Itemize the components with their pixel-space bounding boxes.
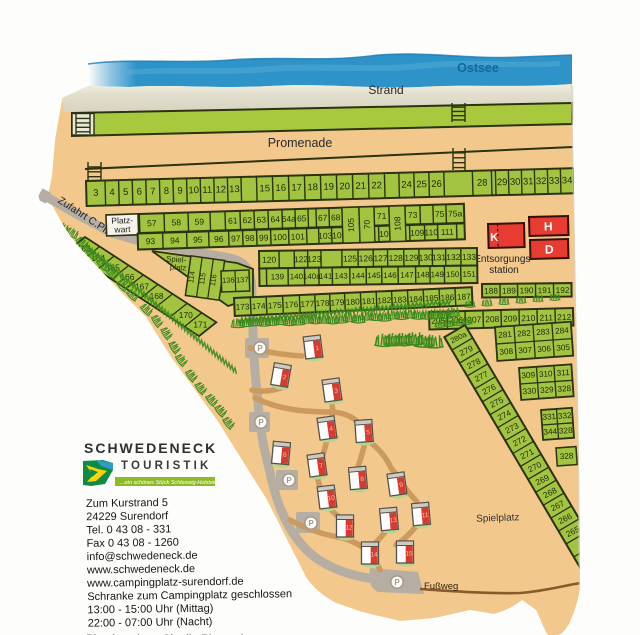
svg-text:328: 328 bbox=[557, 384, 572, 394]
svg-text:140: 140 bbox=[290, 272, 304, 281]
svg-text:57: 57 bbox=[147, 218, 157, 228]
svg-text:www.schwedeneck.de: www.schwedeneck.de bbox=[86, 563, 195, 577]
svg-text:141: 141 bbox=[319, 272, 333, 281]
svg-text:5: 5 bbox=[123, 187, 129, 198]
svg-text:171: 171 bbox=[193, 319, 207, 329]
svg-text:180: 180 bbox=[346, 296, 361, 307]
svg-text:136: 136 bbox=[222, 276, 235, 285]
svg-text:95: 95 bbox=[193, 235, 203, 245]
svg-text:98: 98 bbox=[245, 233, 255, 243]
svg-text:Zum Kurstrand 5: Zum Kurstrand 5 bbox=[86, 497, 168, 510]
svg-text:190: 190 bbox=[520, 285, 534, 295]
svg-text:96: 96 bbox=[214, 234, 224, 244]
svg-text:210: 210 bbox=[521, 313, 536, 323]
svg-text:75: 75 bbox=[435, 209, 445, 219]
svg-text:7: 7 bbox=[150, 186, 156, 197]
svg-text:150: 150 bbox=[446, 270, 460, 279]
svg-text:208: 208 bbox=[485, 314, 500, 324]
svg-text:328: 328 bbox=[559, 426, 574, 436]
svg-text:281: 281 bbox=[498, 330, 513, 340]
svg-text:18: 18 bbox=[307, 182, 318, 193]
svg-text:24229 Surendorf: 24229 Surendorf bbox=[86, 510, 169, 523]
svg-text:211: 211 bbox=[539, 312, 553, 322]
svg-text:31: 31 bbox=[523, 176, 534, 187]
svg-text:6: 6 bbox=[137, 187, 143, 198]
svg-text:209: 209 bbox=[503, 313, 518, 323]
svg-text:13: 13 bbox=[389, 517, 397, 525]
svg-text:191: 191 bbox=[538, 285, 552, 295]
svg-text:58: 58 bbox=[171, 217, 181, 227]
svg-text:H: H bbox=[544, 219, 553, 233]
svg-text:101: 101 bbox=[291, 231, 306, 241]
svg-text:64: 64 bbox=[270, 214, 280, 224]
svg-text:www.campingplatz-surendorf.de: www.campingplatz-surendorf.de bbox=[86, 576, 244, 590]
svg-text:68: 68 bbox=[331, 212, 341, 222]
svg-text:174: 174 bbox=[252, 301, 267, 312]
svg-text:188: 188 bbox=[484, 286, 498, 296]
svg-text:126: 126 bbox=[359, 253, 374, 263]
svg-text:P: P bbox=[308, 519, 314, 528]
svg-text:platz: platz bbox=[170, 262, 187, 272]
svg-text:11: 11 bbox=[421, 512, 429, 520]
svg-text:108: 108 bbox=[392, 216, 402, 231]
svg-text:192: 192 bbox=[556, 285, 570, 295]
svg-text:73: 73 bbox=[408, 210, 418, 220]
svg-text:176: 176 bbox=[284, 299, 299, 310]
svg-text:114: 114 bbox=[186, 271, 197, 284]
svg-text:17: 17 bbox=[291, 182, 302, 193]
svg-text:94: 94 bbox=[170, 235, 180, 245]
svg-text:10: 10 bbox=[327, 495, 335, 503]
svg-text:K: K bbox=[490, 232, 499, 244]
svg-text:15: 15 bbox=[259, 183, 270, 194]
svg-text:311: 311 bbox=[556, 368, 570, 378]
svg-text:173: 173 bbox=[235, 301, 250, 312]
svg-text:Entsorgungs-: Entsorgungs- bbox=[474, 254, 533, 265]
svg-text:28: 28 bbox=[477, 177, 488, 188]
svg-text:308: 308 bbox=[499, 347, 514, 357]
svg-text:144: 144 bbox=[351, 271, 365, 280]
svg-text:99: 99 bbox=[259, 232, 269, 242]
svg-text:...ein schönes Stück Schleswig: ...ein schönes Stück Schleswig-Holstein bbox=[120, 480, 217, 486]
svg-text:Fax 0 43 08 - 1260: Fax 0 43 08 - 1260 bbox=[86, 537, 179, 550]
svg-text:14: 14 bbox=[370, 552, 378, 559]
svg-text:283: 283 bbox=[536, 327, 551, 337]
svg-text:306: 306 bbox=[537, 344, 552, 354]
svg-text:station: station bbox=[489, 265, 518, 276]
svg-text:328: 328 bbox=[559, 451, 574, 461]
svg-text:75a: 75a bbox=[448, 208, 463, 218]
svg-text:13: 13 bbox=[229, 184, 240, 195]
svg-text:16: 16 bbox=[275, 183, 286, 194]
svg-text:21: 21 bbox=[355, 181, 366, 192]
svg-text:212: 212 bbox=[557, 312, 572, 322]
svg-text:103: 103 bbox=[318, 230, 333, 240]
svg-text:32: 32 bbox=[536, 176, 547, 187]
svg-text:65: 65 bbox=[297, 213, 307, 223]
svg-text:8: 8 bbox=[164, 186, 170, 197]
svg-text:3: 3 bbox=[93, 188, 99, 199]
svg-text:100: 100 bbox=[273, 232, 288, 242]
svg-text:132: 132 bbox=[446, 252, 461, 262]
svg-text:25: 25 bbox=[416, 179, 427, 190]
svg-text:149: 149 bbox=[431, 270, 445, 279]
svg-text:305: 305 bbox=[556, 343, 571, 353]
svg-text:125: 125 bbox=[343, 253, 358, 263]
svg-text:175: 175 bbox=[268, 300, 283, 311]
svg-text:116: 116 bbox=[208, 274, 219, 287]
svg-text:24: 24 bbox=[401, 179, 412, 190]
svg-text:115: 115 bbox=[197, 272, 208, 285]
svg-text:10: 10 bbox=[188, 185, 199, 196]
svg-text:129: 129 bbox=[404, 253, 419, 263]
svg-text:329: 329 bbox=[540, 385, 555, 395]
svg-text:62: 62 bbox=[242, 215, 252, 225]
svg-text:179: 179 bbox=[330, 297, 345, 308]
svg-text:123: 123 bbox=[307, 254, 322, 264]
svg-text:120: 120 bbox=[262, 255, 277, 265]
svg-text:97: 97 bbox=[231, 233, 241, 243]
svg-text:282: 282 bbox=[517, 328, 532, 338]
svg-text:info@schwedeneck.de: info@schwedeneck.de bbox=[87, 550, 198, 564]
svg-text:59: 59 bbox=[194, 216, 204, 226]
svg-text:307: 307 bbox=[518, 345, 533, 355]
svg-text:139: 139 bbox=[271, 272, 285, 281]
svg-text:67: 67 bbox=[318, 213, 328, 223]
svg-text:131: 131 bbox=[432, 252, 447, 262]
svg-text:D: D bbox=[545, 242, 554, 256]
svg-text:Tel. 0 43 08 - 331: Tel. 0 43 08 - 331 bbox=[86, 523, 171, 536]
svg-text:Spielplatz: Spielplatz bbox=[476, 512, 520, 525]
svg-text:63: 63 bbox=[256, 215, 266, 225]
svg-text:11: 11 bbox=[202, 185, 212, 196]
svg-text:143: 143 bbox=[334, 271, 348, 280]
svg-text:71: 71 bbox=[377, 211, 387, 221]
svg-text:332: 332 bbox=[558, 411, 573, 421]
svg-text:146: 146 bbox=[383, 271, 397, 280]
svg-text:Ostsee: Ostsee bbox=[457, 61, 499, 75]
svg-text:93: 93 bbox=[145, 236, 155, 246]
svg-text:309: 309 bbox=[521, 370, 536, 380]
svg-text:Strand: Strand bbox=[368, 83, 403, 97]
svg-text:182: 182 bbox=[377, 295, 392, 306]
svg-text:127: 127 bbox=[373, 253, 388, 263]
svg-text:TOURISTIK: TOURISTIK bbox=[121, 460, 212, 472]
svg-text:109: 109 bbox=[410, 228, 425, 238]
svg-text:12: 12 bbox=[215, 184, 226, 195]
svg-text:110: 110 bbox=[424, 227, 438, 237]
svg-text:20: 20 bbox=[339, 181, 350, 192]
svg-text:61: 61 bbox=[228, 215, 238, 225]
svg-text:170: 170 bbox=[179, 310, 193, 320]
svg-text:9: 9 bbox=[177, 185, 183, 196]
svg-text:4: 4 bbox=[109, 187, 115, 198]
svg-text:P: P bbox=[286, 476, 292, 485]
svg-text:13:00 - 15:00 Uhr (Mittag): 13:00 - 15:00 Uhr (Mittag) bbox=[87, 603, 213, 617]
svg-text:15: 15 bbox=[405, 551, 413, 558]
svg-text:148: 148 bbox=[416, 270, 430, 279]
svg-text:137: 137 bbox=[236, 275, 249, 284]
svg-text:22: 22 bbox=[371, 180, 382, 191]
svg-text:P: P bbox=[394, 578, 400, 587]
svg-text:133: 133 bbox=[462, 252, 477, 262]
svg-text:151: 151 bbox=[462, 270, 476, 279]
svg-text:22:00 - 07:00 Uhr (Nacht): 22:00 - 07:00 Uhr (Nacht) bbox=[88, 616, 213, 630]
svg-text:P: P bbox=[258, 418, 264, 427]
svg-text:70: 70 bbox=[362, 219, 372, 229]
svg-text:284: 284 bbox=[555, 326, 570, 336]
svg-text:26: 26 bbox=[431, 179, 442, 190]
svg-text:19: 19 bbox=[323, 182, 334, 193]
svg-text:310: 310 bbox=[539, 369, 554, 379]
svg-text:30: 30 bbox=[510, 177, 521, 188]
svg-text:177: 177 bbox=[300, 298, 315, 309]
svg-text:168: 168 bbox=[150, 291, 164, 301]
svg-text:wart: wart bbox=[113, 224, 131, 235]
svg-text:344: 344 bbox=[543, 427, 558, 437]
svg-text:145: 145 bbox=[367, 271, 381, 280]
svg-text:105: 105 bbox=[346, 218, 356, 233]
svg-text:331: 331 bbox=[542, 412, 557, 422]
svg-text:Promenade: Promenade bbox=[268, 136, 333, 150]
svg-text:178: 178 bbox=[315, 298, 330, 309]
svg-text:34: 34 bbox=[562, 175, 573, 186]
svg-text:189: 189 bbox=[502, 285, 516, 295]
svg-text:SCHWEDENECK: SCHWEDENECK bbox=[84, 440, 217, 456]
svg-text:147: 147 bbox=[400, 271, 414, 280]
svg-text:128: 128 bbox=[389, 253, 404, 263]
svg-text:207: 207 bbox=[467, 314, 482, 324]
svg-text:64a: 64a bbox=[281, 214, 296, 224]
svg-text:12: 12 bbox=[345, 525, 353, 532]
svg-text:Fußweg: Fußweg bbox=[424, 581, 458, 592]
svg-text:111: 111 bbox=[441, 227, 455, 237]
svg-text:181: 181 bbox=[362, 296, 377, 307]
svg-text:P: P bbox=[257, 344, 263, 353]
svg-text:33: 33 bbox=[549, 176, 560, 187]
svg-text:330: 330 bbox=[522, 386, 537, 396]
svg-text:29: 29 bbox=[497, 177, 508, 188]
